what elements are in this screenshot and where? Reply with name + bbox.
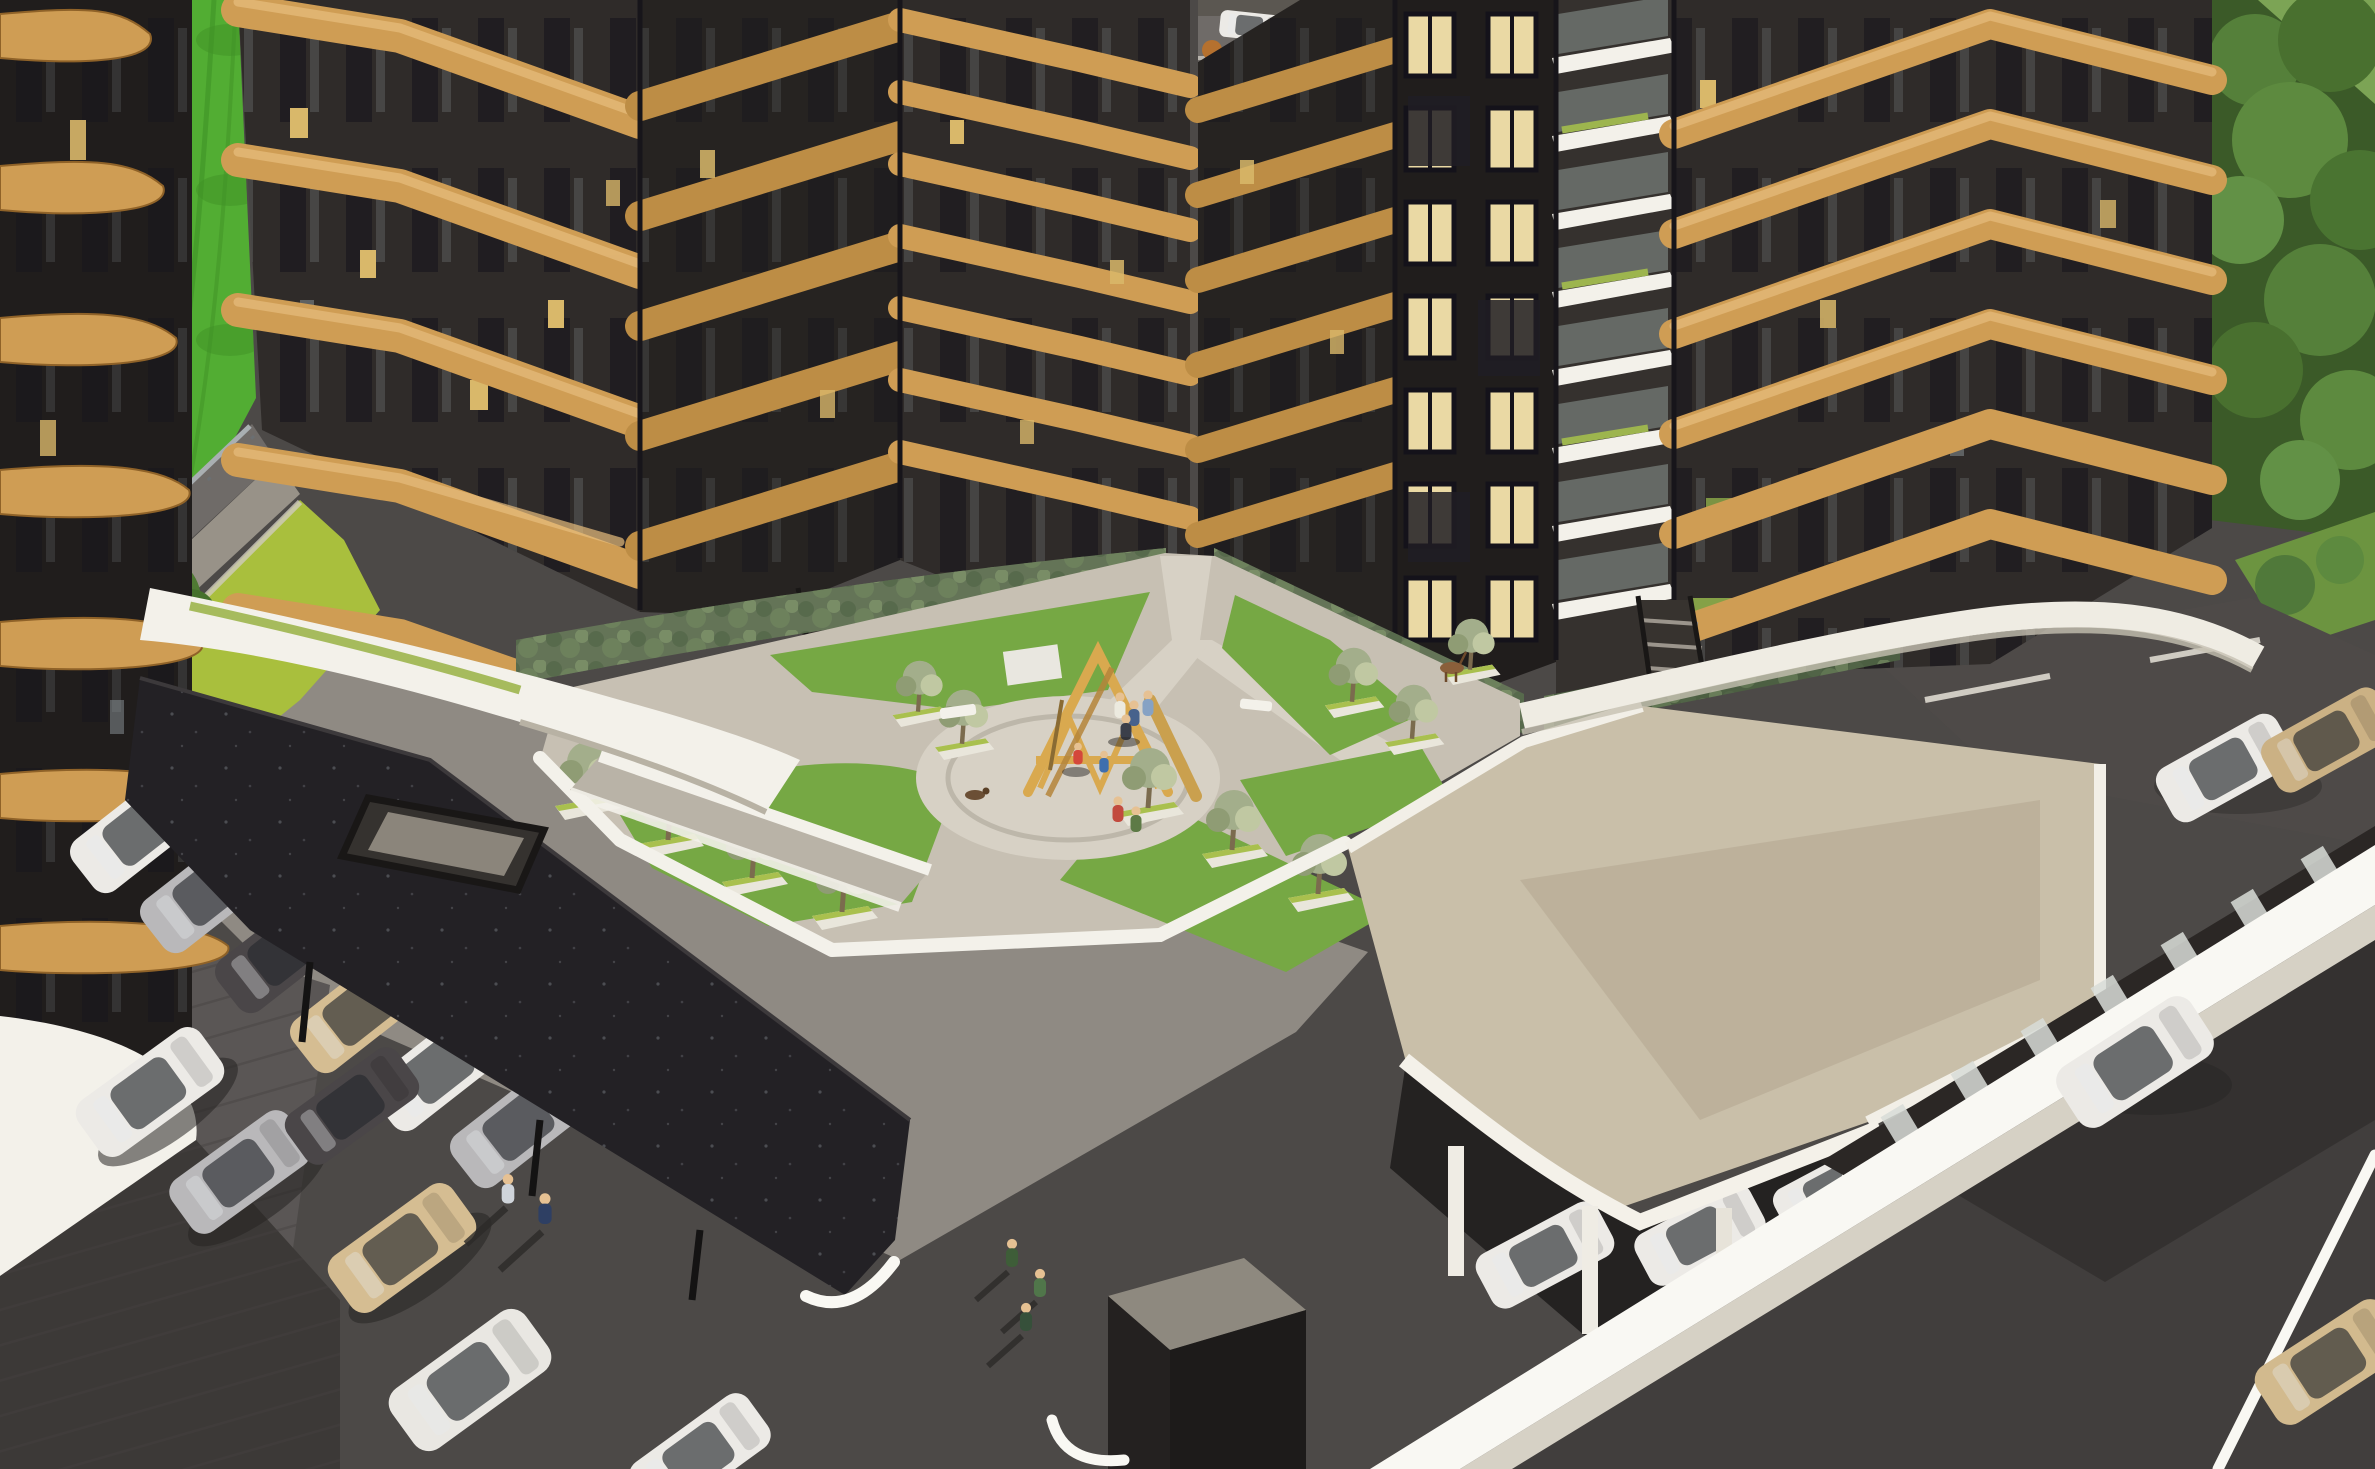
carport-column: [1582, 1206, 1598, 1334]
carport-column: [1448, 1146, 1464, 1276]
pedestrian-woman: [502, 1174, 515, 1203]
render-canvas: [0, 0, 2375, 1469]
east-tower: [1674, 0, 2212, 676]
scene: [0, 0, 2375, 1469]
pedestrian-kid: [1020, 1303, 1032, 1331]
balcony-stack: [1552, 0, 1676, 700]
back-lit-tower: [1395, 0, 1556, 700]
pedestrian-man: [538, 1193, 551, 1224]
pedestrian-kid: [1034, 1269, 1046, 1297]
north-tower-a: [640, 0, 900, 616]
pedestrian-kid: [1006, 1239, 1018, 1267]
